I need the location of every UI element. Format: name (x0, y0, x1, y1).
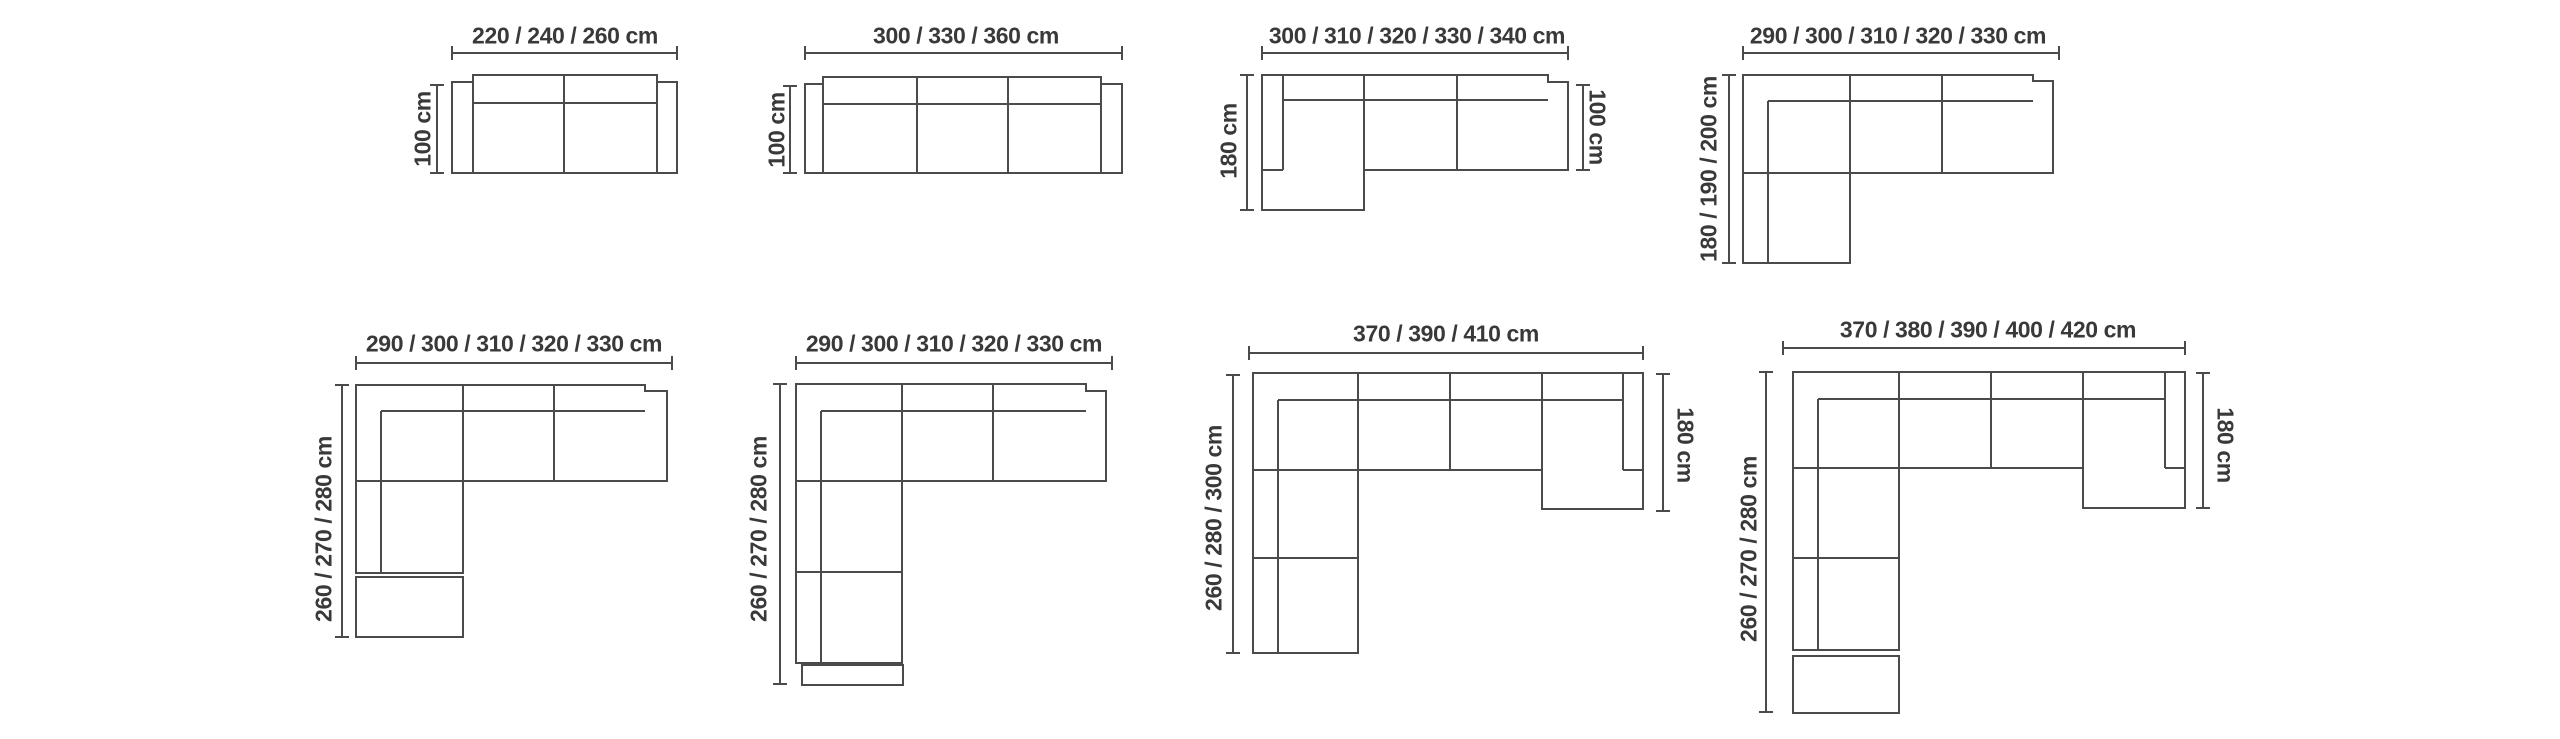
width-dimension-label: 220 / 240 / 260 cm (472, 23, 658, 50)
diagram-u-shape-sofa (1226, 346, 1670, 653)
dimension-lines (783, 46, 1122, 173)
sofa-outline (1262, 75, 1568, 210)
width-dimension-label: 300 / 310 / 320 / 330 / 340 cm (1269, 23, 1565, 50)
diagram-two-seater-sofa (430, 46, 677, 173)
dimension-lines (335, 356, 672, 637)
diagram-corner-sofa-long-chaise (773, 356, 1112, 685)
dimension-lines (1240, 46, 1590, 210)
sofa-outline (356, 385, 667, 637)
width-dimension-label: 290 / 300 / 310 / 320 / 330 cm (366, 331, 662, 358)
depth-dimension-label: 180 cm (2212, 407, 2239, 483)
sofa-plan-drawings (0, 0, 2560, 739)
sofa-outline (452, 75, 677, 173)
width-dimension-label: 300 / 330 / 360 cm (873, 23, 1059, 50)
height-dimension-label: 260 / 270 / 280 cm (746, 436, 773, 622)
diagram-three-seater-sofa (783, 46, 1122, 173)
sofa-outline (1793, 372, 2185, 713)
width-dimension-label: 290 / 300 / 310 / 320 / 330 cm (1750, 23, 2046, 50)
sofa-size-chart: 220 / 240 / 260 cm 100 cm 300 / 330 / 36… (0, 0, 2560, 739)
diagram-corner-sofa-with-ottoman (335, 356, 672, 637)
height-dimension-label: 180 cm (1216, 103, 1243, 179)
depth-dimension-label: 100 cm (764, 92, 791, 168)
depth-dimension-label: 100 cm (410, 91, 437, 167)
dimension-lines (773, 356, 1112, 684)
depth-dimension-label: 180 cm (1672, 407, 1699, 483)
diagram-chaise-sofa-left (1240, 46, 1590, 210)
diagram-corner-sofa (1722, 46, 2059, 263)
sofa-outline (796, 384, 1106, 685)
height-dimension-label: 180 / 190 / 200 cm (1696, 76, 1723, 262)
height-dimension-label: 260 / 270 / 280 cm (311, 436, 338, 622)
dimension-lines (1226, 346, 1670, 653)
width-dimension-label: 290 / 300 / 310 / 320 / 330 cm (806, 331, 1102, 358)
sofa-outline (1253, 373, 1643, 653)
width-dimension-label: 370 / 390 / 410 cm (1353, 321, 1539, 348)
height-dimension-label: 260 / 280 / 300 cm (1201, 425, 1228, 611)
diagram-u-shape-sofa-with-ottoman (1759, 341, 2210, 713)
sofa-outline (1743, 75, 2053, 263)
height-dimension-label: 260 / 270 / 280 cm (1736, 456, 1763, 642)
dimension-lines (430, 46, 677, 173)
sofa-outline (805, 77, 1122, 173)
depth-dimension-label: 100 cm (1584, 89, 1611, 165)
dimension-lines (1722, 46, 2059, 263)
width-dimension-label: 370 / 380 / 390 / 400 / 420 cm (1840, 317, 2136, 344)
